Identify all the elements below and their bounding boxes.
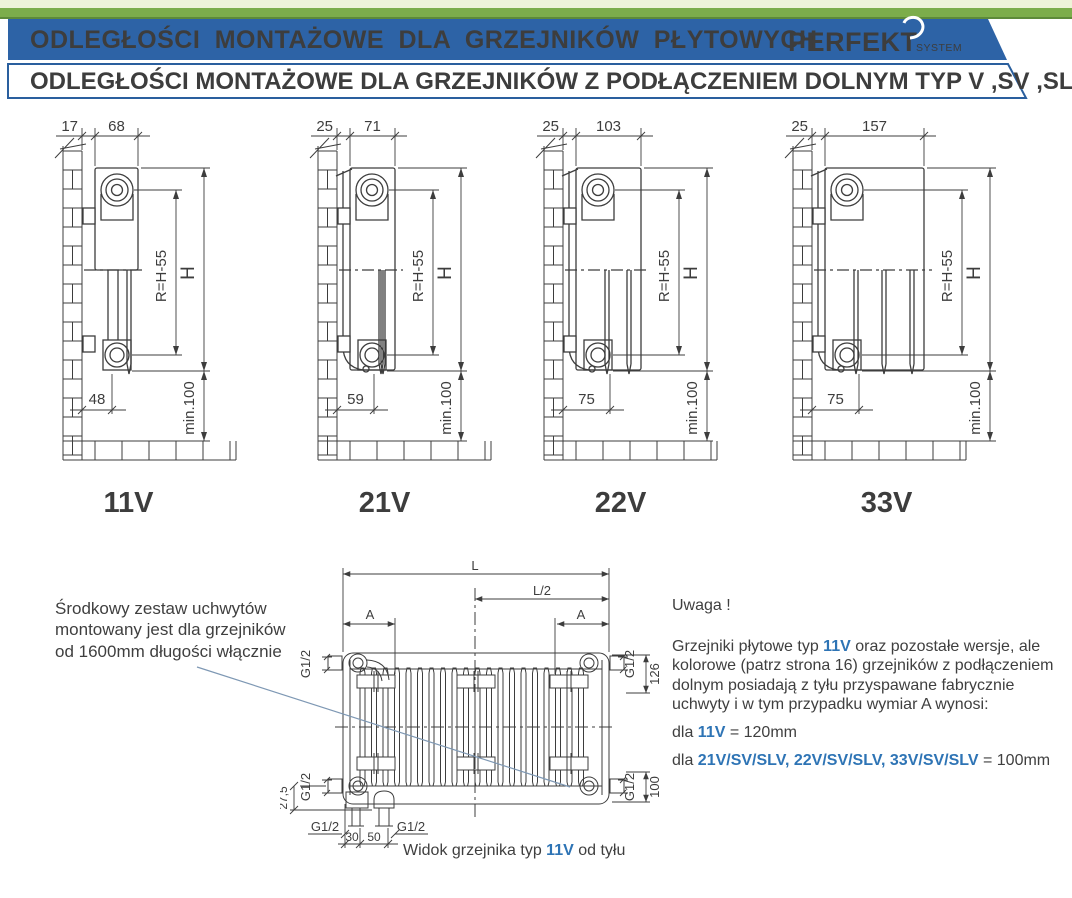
dim-radius: R=H-55 (656, 250, 673, 302)
note-line: Środkowy zestaw uchwytów (55, 598, 335, 619)
caption-type: 11V (546, 842, 574, 859)
type-label: 22V (595, 487, 647, 519)
dim-height: H (178, 266, 199, 280)
dim-depth: 68 (108, 118, 125, 135)
dim-wall-gap: 25 (542, 118, 559, 135)
radiator-side-diagram-33V: 25157HR=H-55min.1007533V (750, 108, 1000, 548)
dim-conn-bottom-right: G1/2 (622, 773, 637, 801)
dim-radius: R=H-55 (939, 250, 956, 302)
page-title: ODLEGŁOŚCI MONTAŻOWE DLA GRZEJNIKÓW PŁYT… (30, 24, 818, 54)
dim-height: H (964, 266, 985, 280)
dim-bottom: 48 (89, 391, 106, 408)
radiator-body (562, 168, 649, 374)
uwaga-rule-other: dla 21V/SV/SLV, 22V/SV/SLV, 33V/SV/SLV =… (672, 751, 1072, 770)
radiator-body (336, 168, 403, 374)
floor (318, 441, 491, 460)
floor (63, 441, 236, 460)
radiator-body (811, 168, 932, 374)
brick-wall (536, 138, 567, 460)
dim-bracket-offset-right: A (577, 607, 586, 622)
dim-floor-clearance: min.100 (181, 381, 198, 434)
dim-bottom: 75 (578, 391, 595, 408)
rear-view-caption: Widok grzejnika typ 11V od tyłu (403, 842, 625, 860)
catalog-page: ODLEGŁOŚCI MONTAŻOWE DLA GRZEJNIKÓW PŁYT… (0, 0, 1072, 898)
radiator-side-panel-21v: 2571HR=H-55min.1005921V (275, 108, 525, 548)
dim-depth: 157 (862, 118, 887, 135)
dim-bottom-offset: 100 (647, 776, 662, 798)
uwaga-title: Uwaga ! (672, 596, 1072, 615)
floor (544, 441, 717, 460)
uwaga-rule-11v: dla 11V = 120mm (672, 723, 1072, 742)
page-subtitle: ODLEGŁOŚCI MONTAŻOWE DLA GRZEJNIKÓW Z PO… (30, 67, 1072, 95)
dim-length: L (471, 560, 478, 573)
caption-prefix: Widok grzejnika typ (403, 842, 546, 859)
radiator-side-diagram-11V: 1768HR=H-55min.1004811V (20, 108, 270, 548)
mounting-brackets (357, 675, 588, 770)
dim-bracket-offset-left: A (366, 607, 375, 622)
type-highlight: 11V (823, 638, 851, 655)
caption-suffix: od tyłu (574, 842, 626, 859)
type-highlight: 21V/SV/SLV, 22V/SV/SLV, 33V/SV/SLV (698, 752, 979, 769)
center-bracket-note: Środkowy zestaw uchwytów montowany jest … (55, 598, 335, 662)
dim-height: H (681, 266, 702, 280)
type-label: 33V (861, 487, 913, 519)
dim-radius: R=H-55 (410, 250, 427, 302)
dim-bottom: 75 (827, 391, 844, 408)
radiator-body (83, 168, 146, 374)
brand-logo-sub: SYSTEM (916, 42, 962, 54)
brick-wall (55, 138, 86, 460)
dim-height: H (435, 266, 456, 280)
dim-conn-stub2: G1/2 (397, 819, 425, 834)
dim-half-length: L/2 (533, 583, 551, 598)
radiator-side-diagram-21V: 2571HR=H-55min.1005921V (275, 108, 525, 548)
radiator-side-panel-33v: 25157HR=H-55min.1007533V (750, 108, 1000, 548)
dim-top-offset: 126 (647, 663, 662, 685)
dim-labels: 25157HR=H-55min.10075 (791, 118, 985, 435)
note-line: od 1600mm długości włącznie (55, 641, 335, 662)
dim-depth: 103 (596, 118, 621, 135)
type-highlight: 11V (698, 724, 726, 741)
dim-conn-top-right: G1/2 (622, 650, 637, 678)
dim-stub1: 30 (345, 830, 359, 844)
uwaga-note: Uwaga ! Grzejniki płytowe typ 11V oraz p… (672, 596, 1072, 770)
dim-wall-gap: 25 (791, 118, 808, 135)
radiator-side-panel-11v: 1768HR=H-55min.1004811V (20, 108, 270, 548)
dim-wall-gap: 17 (61, 118, 78, 135)
dim-floor-clearance: min.100 (967, 381, 984, 434)
radiator-side-panel-22v: 25103HR=H-55min.1007522V (501, 108, 751, 548)
dim-bottom: 59 (347, 391, 364, 408)
bottom-valve-stubs (346, 791, 394, 826)
dim-labels: 25103HR=H-55min.10075 (542, 118, 702, 435)
dim-floor-clearance: min.100 (438, 381, 455, 434)
dim-depth: 71 (364, 118, 381, 135)
brand-logo: PERFEKT (788, 27, 918, 57)
header-banners: ODLEGŁOŚCI MONTAŻOWE DLA GRZEJNIKÓW PŁYT… (0, 0, 1072, 102)
radiator-rear-view: L L/2 A A G1/2 G1/2 G1/2 G1/2 126 100 27… (280, 560, 670, 860)
radiator-side-diagram-22V: 25103HR=H-55min.1007522V (501, 108, 751, 548)
rear-dim-labels: L L/2 A A G1/2 G1/2 G1/2 G1/2 126 100 27… (280, 560, 662, 844)
rear-dimensions (290, 568, 650, 848)
dim-wall-gap: 25 (316, 118, 333, 135)
uwaga-paragraph: Grzejniki płytowe typ 11V oraz pozostałe… (672, 637, 1072, 714)
dim-stub2: 50 (367, 830, 381, 844)
dim-conn-bottom-left: G1/2 (298, 773, 313, 801)
dim-foot: 27,5 (280, 786, 290, 810)
note-line: montowany jest dla grzejników (55, 619, 335, 640)
dim-conn-stub1: G1/2 (311, 819, 339, 834)
floor (793, 441, 996, 460)
brick-wall (785, 138, 816, 460)
dim-floor-clearance: min.100 (684, 381, 701, 434)
dim-radius: R=H-55 (153, 250, 170, 302)
type-label: 21V (359, 487, 411, 519)
type-label: 11V (104, 487, 155, 519)
brick-wall (310, 138, 341, 460)
